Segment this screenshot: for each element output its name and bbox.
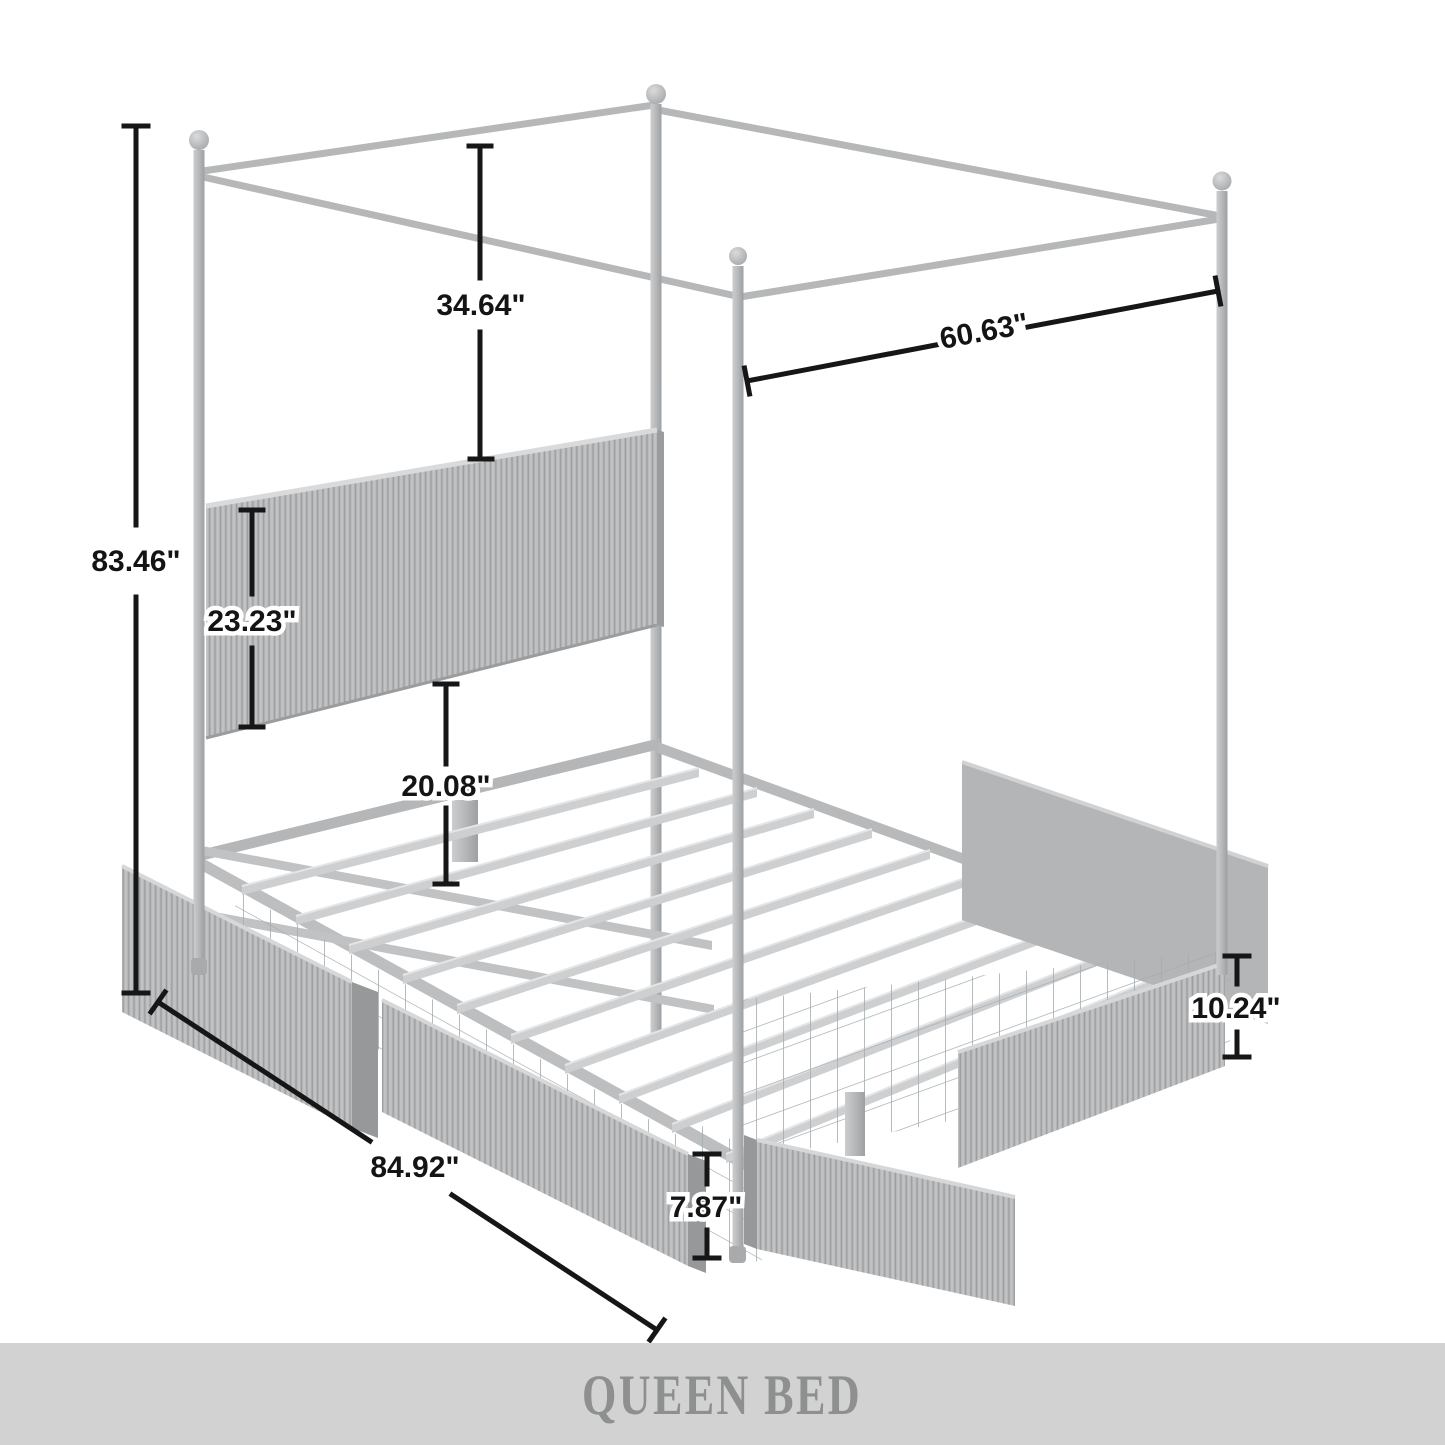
dim-platform-height-label: 20.08" — [401, 770, 490, 803]
dim-canopy-to-headboard-label: 34.64" — [436, 289, 525, 322]
dim-canopy-width-label: 60.63" — [937, 307, 1031, 356]
diagram-canvas: 83.46" 34.64" 60.63" 23.23" 20.08" 84.92… — [0, 0, 1445, 1445]
title-banner: QUEEN BED — [0, 1343, 1445, 1445]
finial-ball-icon — [646, 84, 666, 104]
dim-headboard-height-label: 23.23" — [207, 605, 296, 638]
post-foot — [191, 958, 207, 975]
canopy-head-rail — [203, 105, 654, 171]
dim-overall-height: 83.46" — [91, 126, 180, 993]
headboard-panel — [206, 430, 664, 738]
finial-ball-icon — [1213, 172, 1232, 191]
finial-ball-icon — [189, 130, 209, 150]
dim-overall-length-label: 84.92" — [370, 1151, 459, 1184]
post-foot — [729, 1246, 746, 1263]
drawer-front-front-left — [382, 1000, 706, 1273]
dim-canopy-width: 60.63" — [745, 278, 1221, 394]
banner-title: QUEEN BED — [582, 1364, 862, 1427]
finial-ball-icon — [729, 247, 747, 265]
dim-overall-height-label: 83.46" — [91, 545, 180, 578]
canopy-frame-rails — [203, 105, 1220, 297]
support-leg — [845, 1092, 865, 1156]
dim-canopy-to-headboard: 34.64" — [436, 146, 525, 459]
dim-under-bed-clearance-label: 7.87" — [670, 1191, 743, 1224]
canopy-foot-rail — [740, 219, 1219, 297]
canopy-right-rail — [658, 110, 1220, 216]
dim-drawer-height-label: 10.24" — [1191, 992, 1280, 1025]
bed-dimension-diagram: 83.46" 34.64" 60.63" 23.23" 20.08" 84.92… — [0, 0, 1445, 1445]
